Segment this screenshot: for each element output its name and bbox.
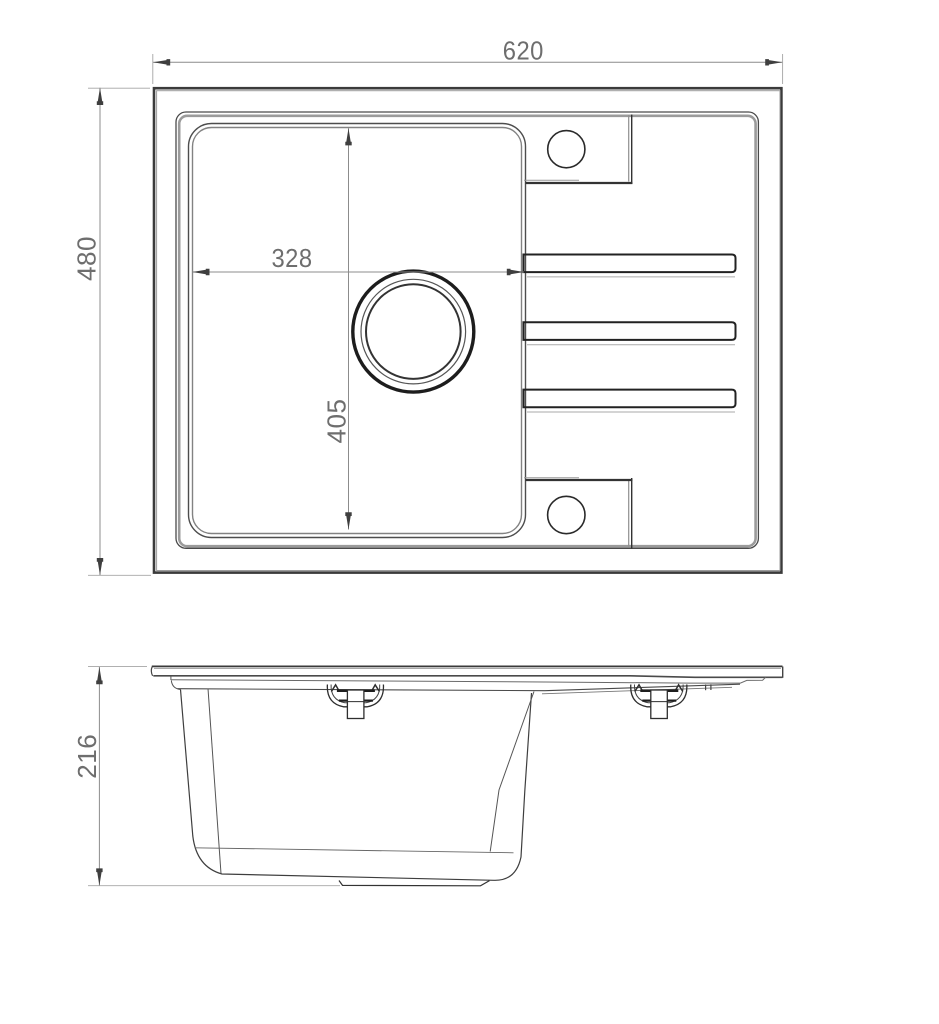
svg-text:216: 216 [72,734,102,779]
svg-text:328: 328 [272,243,313,273]
svg-text:405: 405 [322,399,352,444]
svg-text:480: 480 [72,236,102,281]
svg-text:620: 620 [503,36,544,66]
